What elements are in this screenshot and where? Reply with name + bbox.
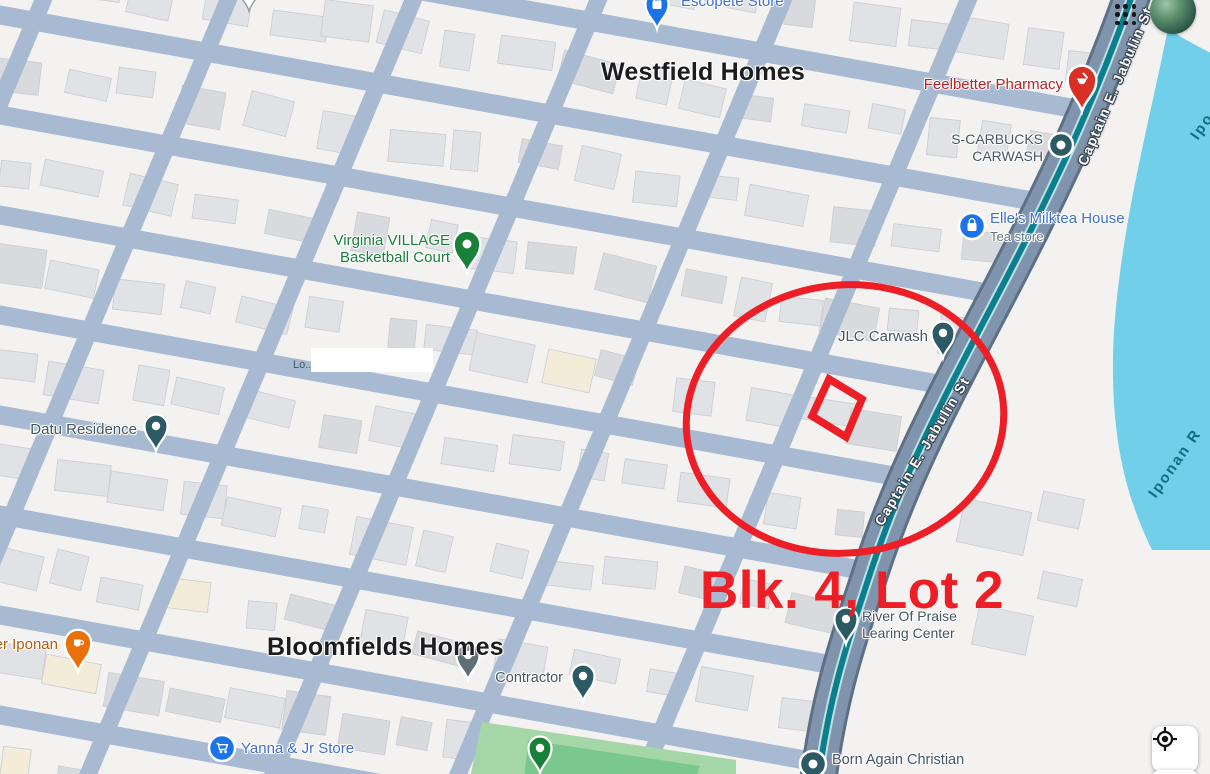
grid-dot (1115, 12, 1120, 17)
scarbucks-line2: CARWASH (951, 148, 1043, 165)
elles-name: Elle's Milktea House (990, 210, 1125, 228)
jlc-carwash-label[interactable]: JLC Carwash (838, 328, 928, 345)
locality-westfield: Westfield Homes (601, 58, 805, 87)
map-base-layer (0, 0, 1210, 774)
feelbetter-pharmacy-label[interactable]: Feelbetter Pharmacy (924, 76, 1063, 93)
grid-dot (1123, 4, 1128, 9)
grid-dot (1132, 21, 1137, 26)
grid-dot (1123, 21, 1128, 26)
grid-dot (1115, 4, 1120, 9)
locality-bloomfields: Bloomfields Homes (267, 633, 504, 662)
virginia-basketball-label[interactable]: Virginia VILLAGE Basketball Court (334, 232, 450, 266)
river-of-praise-line2: Learing Center (862, 625, 957, 642)
crosshair-target-icon (1152, 726, 1178, 752)
elles-milktea-label[interactable]: Elle's Milktea House Tea store (990, 210, 1125, 246)
grid-dot (1115, 21, 1120, 26)
grid-dot (1132, 4, 1137, 9)
map-canvas[interactable]: Captain E. Jabulin St Captain E. Jabulin… (0, 0, 1210, 774)
my-location-button[interactable] (1152, 726, 1198, 772)
redaction-box (311, 348, 433, 372)
annotation-label: Blk. 4, Lot 2 (700, 560, 1004, 621)
virginia-line2: Basketball Court (334, 249, 450, 266)
elles-subtitle: Tea store (990, 228, 1125, 246)
scarbucks-line1: S-CARBUCKS (951, 131, 1043, 148)
iponan-store-label[interactable]: ser Iponan (0, 636, 58, 653)
scarbucks-carwash-label[interactable]: S-CARBUCKS CARWASH (951, 131, 1043, 165)
grid-dot (1123, 12, 1128, 17)
virginia-line1: Virginia VILLAGE (334, 232, 450, 249)
datu-residence-label[interactable]: Datu Residence (30, 421, 137, 438)
contractor-label[interactable]: Contractor (495, 670, 563, 686)
secondary-button-partial[interactable] (1152, 770, 1198, 774)
google-apps-grid-icon[interactable] (1115, 4, 1137, 26)
yanna-store-label[interactable]: Yanna & Jr Store (241, 740, 354, 757)
born-again-label[interactable]: Born Again Christian (832, 752, 964, 768)
grid-dot (1132, 12, 1137, 17)
escopete-store-label[interactable]: Escopete Store (681, 0, 784, 10)
